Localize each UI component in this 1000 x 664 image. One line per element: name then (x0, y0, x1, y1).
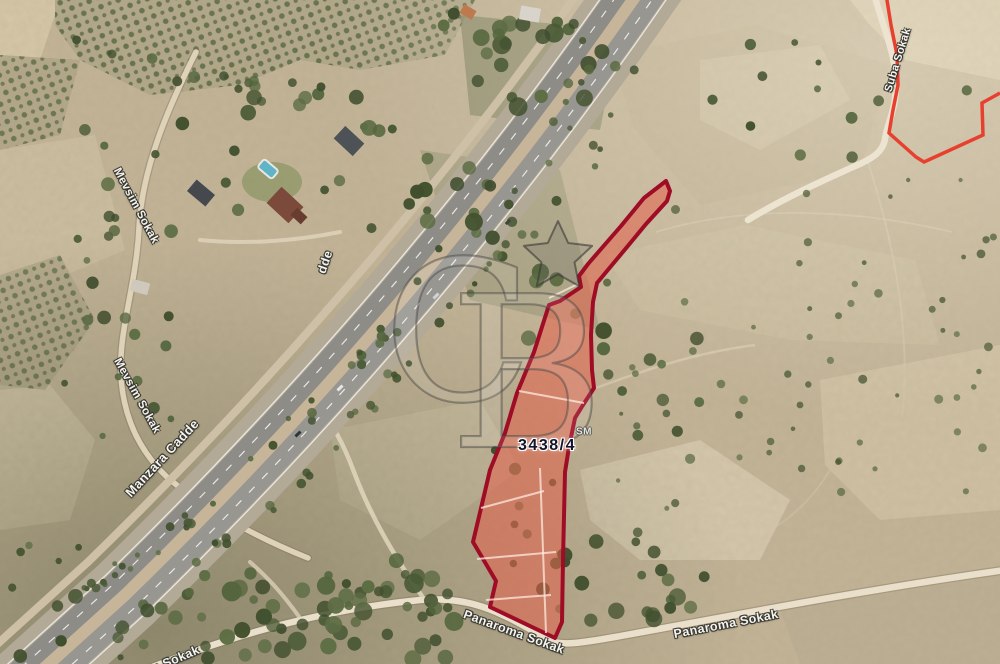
satellite-map-art: C B (0, 0, 1000, 664)
parcel-number-label: 3438/4 (518, 437, 576, 455)
watermark-letter-b: B (449, 251, 604, 497)
watermark-service-mark: SM (576, 427, 592, 438)
satellite-map-viewport[interactable]: C B Manzara Cadde dde Mevsim Sokak Mevsi… (0, 0, 1000, 664)
